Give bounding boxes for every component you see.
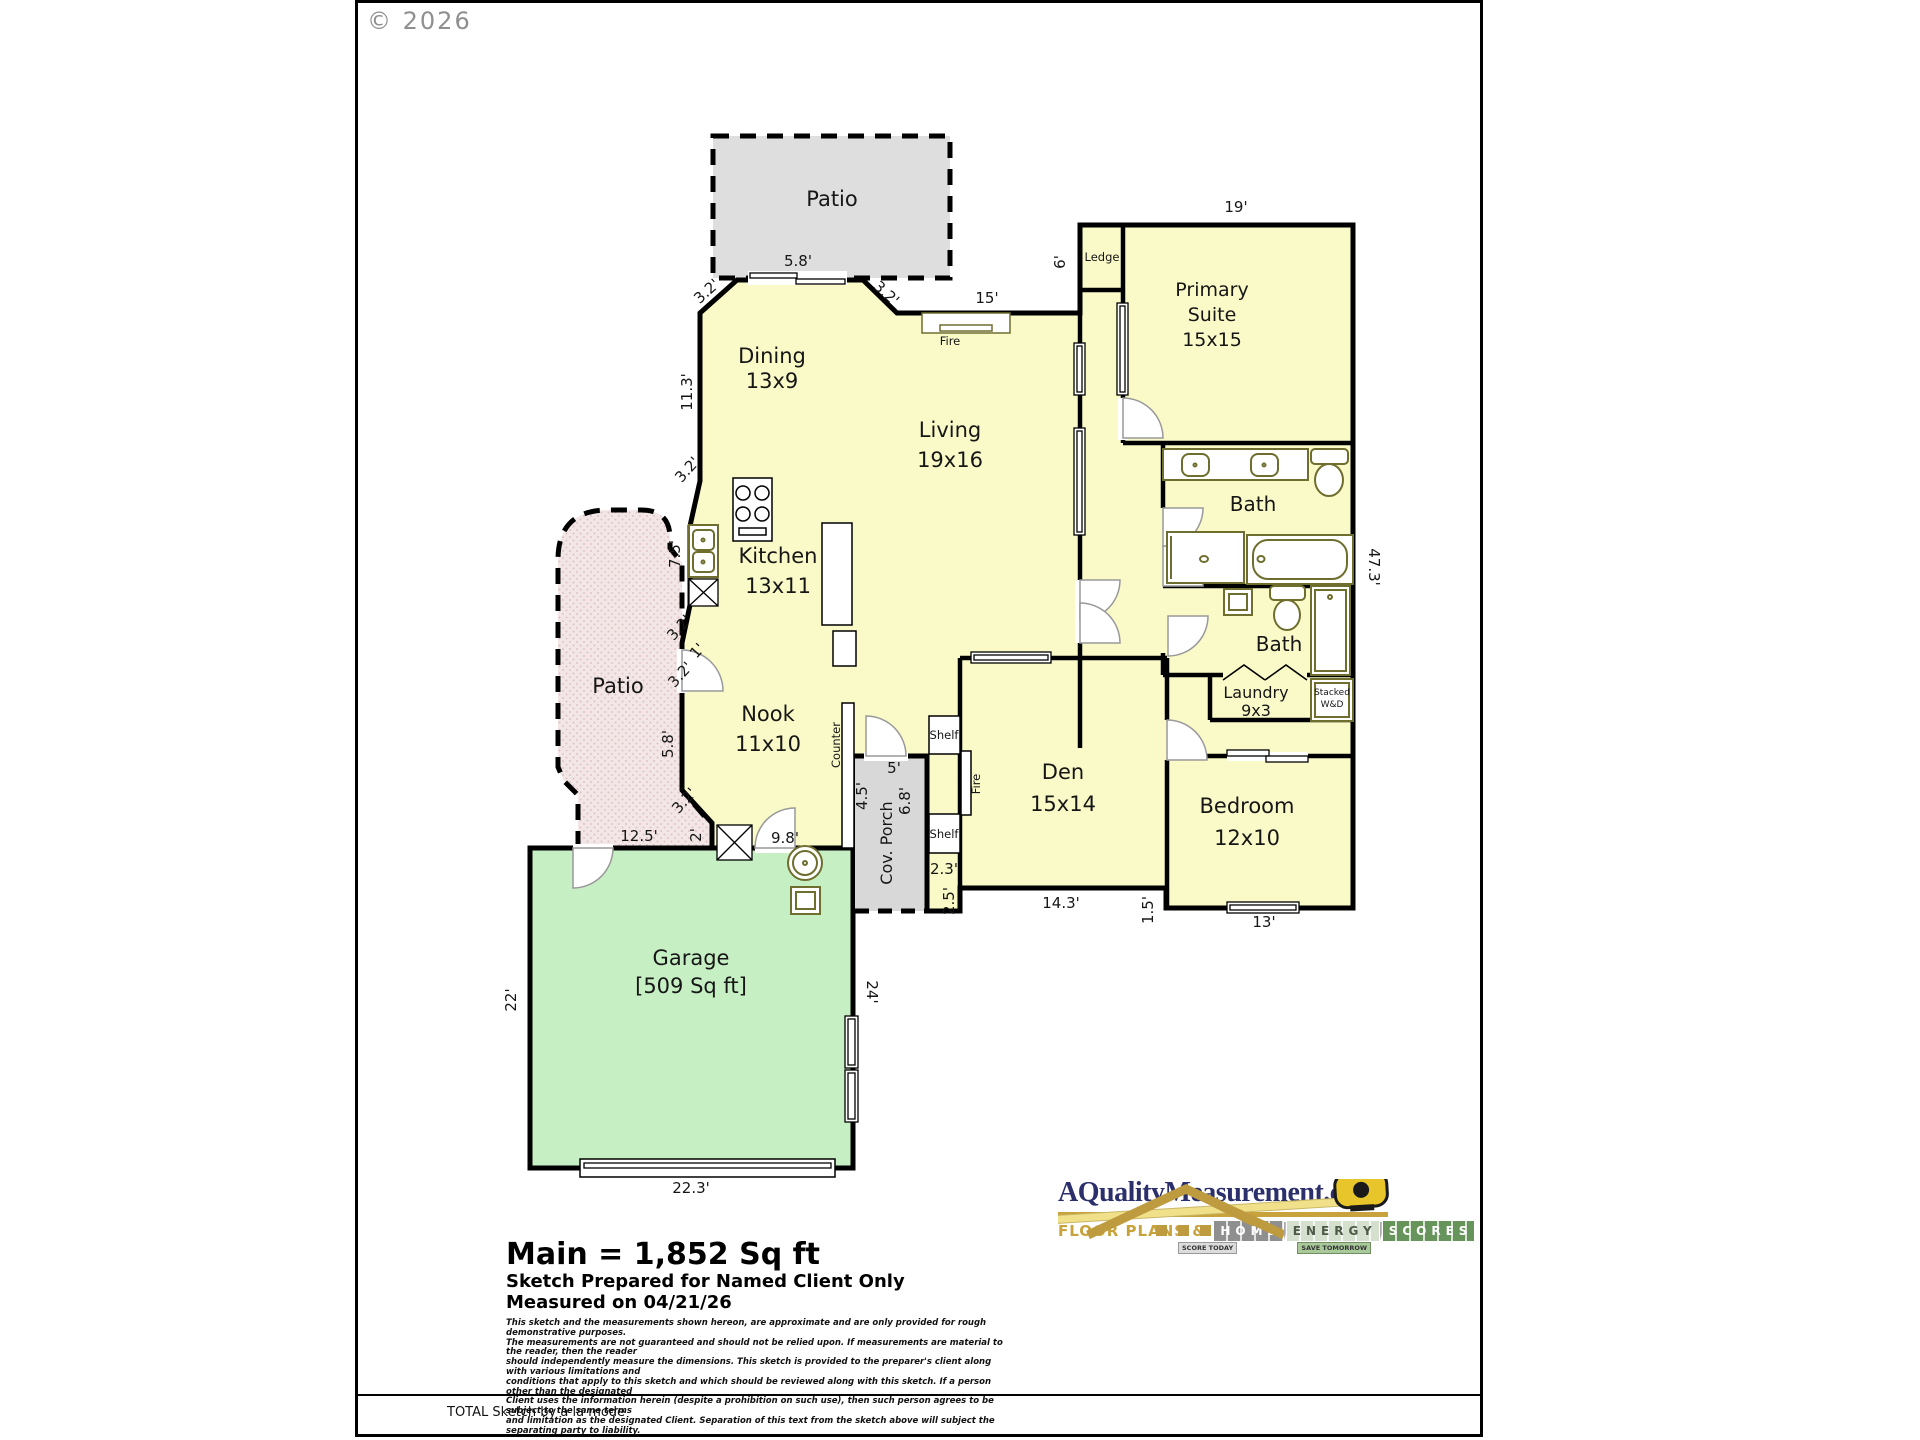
stacked-wd-label-1: Stacked <box>1314 688 1350 698</box>
den-size: 15x14 <box>1030 792 1096 816</box>
dishwasher <box>689 579 718 606</box>
primary-suite-label-1: Primary <box>1175 279 1248 301</box>
garage-door-panel <box>584 1163 831 1168</box>
patio-left-label: Patio <box>592 674 644 698</box>
garage-side-shelf-pane <box>848 1073 855 1119</box>
porch-label: Cov. Porch <box>877 801 896 884</box>
prepared-for-note: Sketch Prepared for Named Client Only <box>506 1271 1006 1292</box>
bedroom-closet-slider <box>1227 750 1269 756</box>
save-tomorrow-badge: SAVE TOMORROW <box>1297 1242 1371 1254</box>
dim-step: 1.5' <box>1139 896 1157 924</box>
dim-ledge-west: 6' <box>1051 255 1069 269</box>
dining-size: 13x9 <box>746 369 799 393</box>
nook-label: Nook <box>741 702 795 726</box>
kitchen-size: 13x11 <box>745 574 811 598</box>
dim-dining-west: 11.3' <box>678 373 696 411</box>
patio-slider-panel <box>796 279 845 284</box>
stacked-wd-label-2: W&D <box>1321 700 1344 710</box>
dim-patio-south: 12.5' <box>620 827 658 845</box>
living-fire-label: Fire <box>940 334 961 348</box>
dim-garage-east: 24' <box>863 980 881 1003</box>
laundry-label: Laundry <box>1223 683 1288 702</box>
dim-suite-north: 19' <box>1224 198 1247 216</box>
disclaimer-line: should independently measure the dimensi… <box>506 1358 1006 1378</box>
hall-bath-label: Bath <box>1256 632 1303 656</box>
tape-measure-roof-icon <box>1058 1179 1398 1239</box>
primary-bath-shower <box>1167 532 1244 583</box>
nook-size: 11x10 <box>735 732 801 756</box>
bathtub <box>1247 535 1353 584</box>
measured-date: Measured on 04/21/26 <box>506 1292 1006 1313</box>
kitchen-sink <box>689 525 718 577</box>
living-fireplace <box>922 313 1010 333</box>
dim-den-south: 14.3' <box>1042 894 1080 912</box>
primary-bath-label: Bath <box>1230 492 1277 516</box>
shelf-upper-label: Shelf <box>930 728 960 742</box>
disclaimer-line: This sketch and the measurements shown h… <box>506 1319 1006 1339</box>
bedroom-label: Bedroom <box>1200 794 1295 818</box>
kitchen-label: Kitchen <box>739 544 818 568</box>
living-size: 19x16 <box>917 448 983 472</box>
bedroom-window-pane <box>1230 905 1296 910</box>
patio-slider-panel <box>750 273 797 278</box>
bedroom-closet-slider <box>1266 756 1308 762</box>
living-label: Living <box>919 418 981 442</box>
dim-entry-jog-w: 2.3' <box>930 860 958 878</box>
dim-nook-jog: 2' <box>687 828 705 842</box>
score-today-badge: SCORE TODAY <box>1178 1242 1237 1254</box>
logo-badges: SCORE TODAY SAVE TOMORROW <box>1058 1244 1408 1252</box>
dim-patio-door: 5.8' <box>784 252 812 270</box>
den-window-pane <box>974 655 1048 660</box>
footer-divider <box>358 1394 1480 1396</box>
attic-access <box>717 825 752 860</box>
dim-entry-jog-h: 2.5' <box>940 887 958 915</box>
kitchen-island-counter <box>822 523 852 625</box>
suite-wall-window-pane <box>1120 306 1125 392</box>
company-logo: AQualityMeasurement.com FLOOR PLANS & HO… <box>1058 1179 1408 1252</box>
dim-garage-south: 22.3' <box>672 1179 710 1197</box>
dim-living-north: 15' <box>975 289 998 307</box>
dim-porch-east: 6.8' <box>896 787 914 815</box>
living-wall-window-pane <box>1077 431 1082 532</box>
patio-top-label: Patio <box>806 187 858 211</box>
dim-garage-north-seg: 9.8' <box>771 829 799 847</box>
primary-suite-label-2: Suite <box>1188 304 1237 326</box>
main-area-total: Main = 1,852 Sq ft <box>506 1239 1006 1271</box>
ledge-label: Ledge <box>1085 250 1120 264</box>
pantry-cabinet <box>833 631 856 666</box>
dim-nook-west: 5.8' <box>659 730 677 758</box>
dim-kitchen-west: 7.5' <box>666 540 684 568</box>
dim-porch-width: 5' <box>887 759 901 777</box>
hall-bath-shower <box>1311 586 1350 675</box>
garage-side-door-pane <box>848 1019 855 1065</box>
counter-label: Counter <box>829 722 843 768</box>
primary-bath-vanity <box>1163 449 1308 480</box>
dim-east-wall: 47.3' <box>1365 548 1383 586</box>
shelf-lower-label: Shelf <box>930 827 960 841</box>
counter-strip <box>842 703 854 848</box>
dim-porch-west: 4.5' <box>853 782 871 810</box>
sketch-software-credit: TOTAL Sketch by a la mode <box>447 1405 625 1420</box>
primary-suite-size: 15x15 <box>1182 329 1242 351</box>
laundry-size: 9x3 <box>1241 701 1271 720</box>
stove <box>733 478 772 541</box>
garage-label: Garage <box>653 946 730 970</box>
floor-plan-page: © 2026 <box>355 0 1483 1437</box>
living-wall-window-pane <box>1077 346 1082 392</box>
dining-label: Dining <box>738 344 806 368</box>
disclaimer-line: The measurements are not guaranteed and … <box>506 1339 1006 1359</box>
den-fire-label: Fire <box>969 774 983 795</box>
den-label: Den <box>1042 760 1084 784</box>
dim-bedroom-south: 13' <box>1252 913 1275 931</box>
garage-size: [509 Sq ft] <box>635 974 747 998</box>
bedroom-size: 12x10 <box>1214 826 1280 850</box>
dim-garage-west: 22' <box>502 988 520 1011</box>
hall-bath-sink <box>1224 589 1252 615</box>
